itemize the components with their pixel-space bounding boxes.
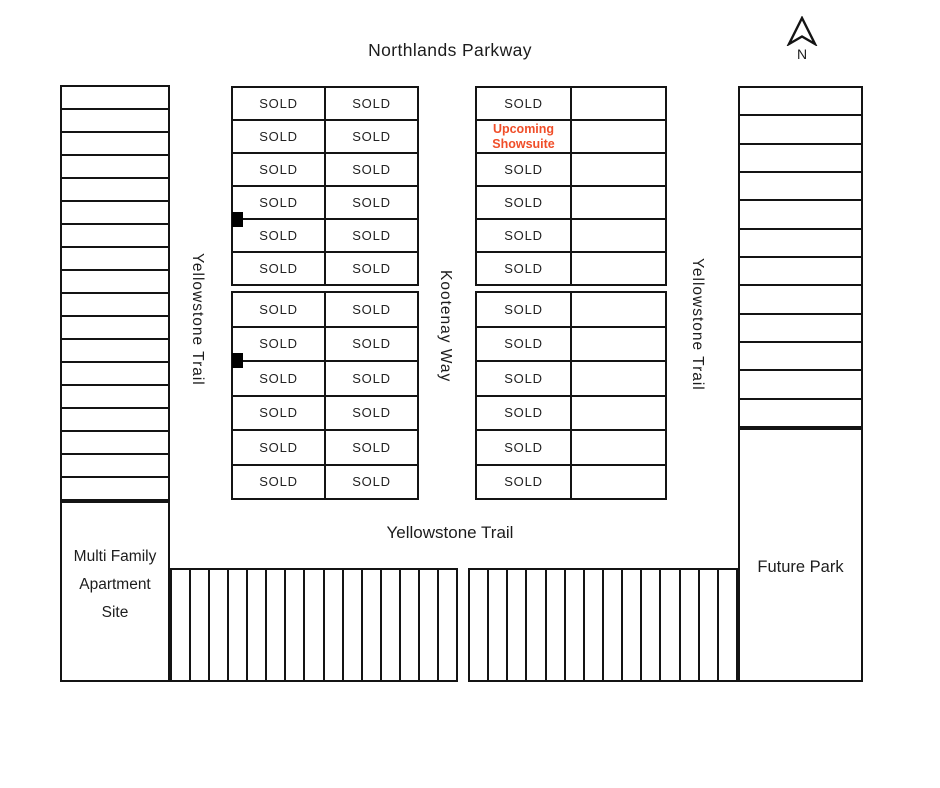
- lot-row[interactable]: [740, 369, 861, 397]
- sold-label: SOLD: [259, 228, 298, 243]
- sold-label: SOLD: [504, 195, 543, 210]
- sold-label: SOLD: [504, 336, 543, 351]
- lot-row[interactable]: [62, 131, 168, 154]
- street-label-kootenay-way: Kootenay Way: [436, 270, 454, 382]
- west-lot-column: [60, 85, 170, 501]
- lot-cell[interactable]: [698, 570, 717, 680]
- lot-cell[interactable]: [602, 570, 621, 680]
- lot-block-row: SOLDSOLD: [233, 395, 417, 430]
- lot-cell-sold[interactable]: SOLD: [233, 154, 324, 185]
- lot-row[interactable]: [740, 284, 861, 312]
- lot-row[interactable]: [62, 223, 168, 246]
- lot-block-row: SOLD: [477, 326, 665, 361]
- multi-family-label-line1: Multi Family: [62, 543, 168, 571]
- south-east-lot-row: [468, 568, 738, 682]
- lot-block-row: SOLD: [477, 152, 665, 185]
- lot-marker-icon: [232, 212, 243, 227]
- lot-block-row: SOLDSOLD: [233, 251, 417, 284]
- lot-row[interactable]: [740, 228, 861, 256]
- sold-label: SOLD: [259, 302, 298, 317]
- lot-cell-sold[interactable]: SOLD: [233, 121, 324, 152]
- lot-cell-sold[interactable]: SOLD: [477, 253, 570, 284]
- site-plan: Northlands Parkway N Yellowstone Trail S…: [0, 0, 940, 788]
- lot-row[interactable]: [740, 341, 861, 369]
- lot-row[interactable]: [740, 114, 861, 142]
- street-label-northlands-parkway: Northlands Parkway: [0, 40, 900, 61]
- lot-row[interactable]: [62, 154, 168, 177]
- lot-cell-sold[interactable]: SOLD: [233, 362, 324, 395]
- sold-label: SOLD: [259, 474, 298, 489]
- lot-cell-sold[interactable]: SOLD: [477, 431, 570, 464]
- lot-cell-sold[interactable]: SOLD: [477, 293, 570, 326]
- lot-cell[interactable]: [640, 570, 659, 680]
- lot-cell-empty[interactable]: [570, 154, 665, 185]
- center-east-block-group-2: SOLDSOLDSOLDSOLDSOLDSOLD: [475, 291, 667, 500]
- lot-marker-icon: [232, 353, 243, 368]
- lot-cell[interactable]: [506, 570, 525, 680]
- lot-cell-empty[interactable]: [570, 328, 665, 361]
- sold-label: SOLD: [352, 162, 391, 177]
- lot-cell-sold[interactable]: SOLD: [477, 397, 570, 430]
- sold-label: SOLD: [259, 405, 298, 420]
- sold-label: SOLD: [352, 474, 391, 489]
- sold-label: SOLD: [259, 96, 298, 111]
- lot-cell-showsuite[interactable]: Upcoming Showsuite: [477, 121, 570, 152]
- lot-cell[interactable]: [246, 570, 265, 680]
- lot-cell-sold[interactable]: SOLD: [324, 187, 417, 218]
- lot-cell-sold[interactable]: SOLD: [324, 253, 417, 284]
- sold-label: SOLD: [352, 195, 391, 210]
- lot-row[interactable]: [740, 143, 861, 171]
- lot-cell[interactable]: [189, 570, 208, 680]
- future-park-area: Future Park: [738, 428, 863, 682]
- sold-label: SOLD: [259, 371, 298, 386]
- lot-cell-sold[interactable]: SOLD: [324, 293, 417, 326]
- lot-block-row: SOLDSOLD: [233, 119, 417, 152]
- center-west-block-group-2: SOLDSOLDSOLDSOLDSOLDSOLDSOLDSOLDSOLDSOLD…: [231, 291, 419, 500]
- lot-row[interactable]: [62, 246, 168, 269]
- lot-cell-sold[interactable]: SOLD: [324, 397, 417, 430]
- sold-label: SOLD: [259, 129, 298, 144]
- lot-cell[interactable]: [399, 570, 418, 680]
- lot-cell-sold[interactable]: SOLD: [233, 431, 324, 464]
- sold-label: SOLD: [352, 261, 391, 276]
- lot-row[interactable]: [740, 398, 861, 426]
- lot-cell-sold[interactable]: SOLD: [233, 328, 324, 361]
- multi-family-label-line3: Site: [62, 599, 168, 627]
- lot-cell-sold[interactable]: SOLD: [477, 328, 570, 361]
- lot-cell[interactable]: [284, 570, 303, 680]
- lot-cell-sold[interactable]: SOLD: [477, 220, 570, 251]
- lot-cell[interactable]: [265, 570, 284, 680]
- lot-block-row: SOLD: [477, 429, 665, 464]
- lot-cell-sold[interactable]: SOLD: [477, 466, 570, 499]
- lot-block-row: SOLD: [477, 395, 665, 430]
- lot-cell-sold[interactable]: SOLD: [324, 121, 417, 152]
- lot-cell[interactable]: [621, 570, 640, 680]
- lot-block-row: SOLDSOLD: [233, 326, 417, 361]
- lot-cell-empty[interactable]: [570, 397, 665, 430]
- sold-label: SOLD: [352, 129, 391, 144]
- lot-row[interactable]: [62, 200, 168, 223]
- south-west-lot-row: [170, 568, 458, 682]
- sold-label: SOLD: [504, 162, 543, 177]
- lot-cell-sold[interactable]: SOLD: [477, 154, 570, 185]
- lot-cell-empty[interactable]: [570, 88, 665, 119]
- lot-row[interactable]: [62, 269, 168, 292]
- lot-block-row: SOLD: [477, 464, 665, 499]
- lot-cell-sold[interactable]: SOLD: [233, 88, 324, 119]
- lot-cell-sold[interactable]: SOLD: [233, 253, 324, 284]
- lot-block-row: SOLDSOLD: [233, 360, 417, 395]
- lot-cell-sold[interactable]: SOLD: [324, 88, 417, 119]
- lot-cell-empty[interactable]: [570, 187, 665, 218]
- lot-row[interactable]: [62, 361, 168, 384]
- lot-block-row: SOLDSOLD: [233, 293, 417, 326]
- lot-row[interactable]: [740, 199, 861, 227]
- lot-cell[interactable]: [227, 570, 246, 680]
- sold-label: SOLD: [504, 474, 543, 489]
- lot-cell-sold[interactable]: SOLD: [324, 220, 417, 251]
- sold-label: SOLD: [504, 228, 543, 243]
- lot-cell-sold[interactable]: SOLD: [233, 293, 324, 326]
- sold-label: SOLD: [259, 162, 298, 177]
- lot-cell[interactable]: [583, 570, 602, 680]
- lot-block-row: SOLDSOLD: [233, 429, 417, 464]
- lot-cell-sold[interactable]: SOLD: [233, 220, 324, 251]
- lot-row[interactable]: [740, 313, 861, 341]
- lot-row[interactable]: [62, 108, 168, 131]
- lot-block-row: SOLDSOLD: [233, 218, 417, 251]
- lot-cell[interactable]: [208, 570, 227, 680]
- sold-label: SOLD: [504, 440, 543, 455]
- lot-row[interactable]: [62, 87, 168, 108]
- compass: N: [780, 16, 824, 62]
- lot-row[interactable]: [740, 88, 861, 114]
- lot-cell[interactable]: [679, 570, 698, 680]
- lot-block-row: SOLD: [477, 185, 665, 218]
- sold-label: SOLD: [352, 405, 391, 420]
- sold-label: SOLD: [259, 440, 298, 455]
- lot-cell[interactable]: [545, 570, 564, 680]
- lot-cell[interactable]: [659, 570, 678, 680]
- east-lot-column: [738, 86, 863, 428]
- lot-cell-sold[interactable]: SOLD: [477, 187, 570, 218]
- lot-cell-sold[interactable]: SOLD: [324, 466, 417, 499]
- lot-cell-sold[interactable]: SOLD: [324, 154, 417, 185]
- lot-block-row: SOLDSOLD: [233, 152, 417, 185]
- lot-block-row: SOLDSOLD: [233, 88, 417, 119]
- showsuite-label: Upcoming Showsuite: [483, 122, 565, 152]
- lot-block-row: SOLD: [477, 218, 665, 251]
- sold-label: SOLD: [352, 96, 391, 111]
- lot-block-row: SOLD: [477, 88, 665, 119]
- lot-cell[interactable]: [361, 570, 380, 680]
- lot-cell-empty[interactable]: [570, 220, 665, 251]
- lot-row[interactable]: [62, 315, 168, 338]
- street-label-yellowstone-trail-south: Yellowstone Trail: [0, 523, 900, 543]
- sold-label: SOLD: [259, 261, 298, 276]
- lot-row[interactable]: [62, 407, 168, 430]
- lot-block-row: SOLD: [477, 360, 665, 395]
- lot-cell-empty[interactable]: [570, 121, 665, 152]
- lot-row[interactable]: [62, 338, 168, 361]
- lot-cell-empty[interactable]: [570, 466, 665, 499]
- sold-label: SOLD: [352, 302, 391, 317]
- lot-cell[interactable]: [342, 570, 361, 680]
- lot-block-row: Upcoming Showsuite: [477, 119, 665, 152]
- lot-block-row: SOLD: [477, 293, 665, 326]
- lot-cell-sold[interactable]: SOLD: [477, 362, 570, 395]
- sold-label: SOLD: [504, 405, 543, 420]
- sold-label: SOLD: [259, 195, 298, 210]
- lot-cell-empty[interactable]: [570, 362, 665, 395]
- lot-row[interactable]: [740, 171, 861, 199]
- lot-cell[interactable]: [717, 570, 736, 680]
- lot-cell-sold[interactable]: SOLD: [324, 431, 417, 464]
- sold-label: SOLD: [352, 228, 391, 243]
- lot-cell-sold[interactable]: SOLD: [233, 397, 324, 430]
- multi-family-label-line2: Apartment: [62, 571, 168, 599]
- lot-block-row: SOLD: [477, 251, 665, 284]
- lot-cell[interactable]: [172, 570, 189, 680]
- lot-block-row: SOLDSOLD: [233, 464, 417, 499]
- lot-cell-sold[interactable]: SOLD: [477, 88, 570, 119]
- lot-row[interactable]: [62, 292, 168, 315]
- future-park-label: Future Park: [740, 558, 861, 577]
- sold-label: SOLD: [352, 371, 391, 386]
- street-label-yellowstone-trail-west: Yellowstone Trail: [188, 253, 206, 386]
- lot-cell[interactable]: [323, 570, 342, 680]
- lot-row[interactable]: [62, 476, 168, 499]
- sold-label: SOLD: [504, 302, 543, 317]
- lot-cell-sold[interactable]: SOLD: [233, 466, 324, 499]
- center-east-block-group-1: SOLDUpcoming ShowsuiteSOLDSOLDSOLDSOLD: [475, 86, 667, 286]
- lot-cell-sold[interactable]: SOLD: [324, 328, 417, 361]
- sold-label: SOLD: [504, 371, 543, 386]
- lot-row[interactable]: [62, 384, 168, 407]
- lot-cell-empty[interactable]: [570, 253, 665, 284]
- lot-cell[interactable]: [525, 570, 544, 680]
- lot-cell[interactable]: [380, 570, 399, 680]
- lot-block-row: SOLDSOLD: [233, 185, 417, 218]
- center-west-block-group-1: SOLDSOLDSOLDSOLDSOLDSOLDSOLDSOLDSOLDSOLD…: [231, 86, 419, 286]
- sold-label: SOLD: [352, 440, 391, 455]
- lot-cell[interactable]: [418, 570, 437, 680]
- street-label-yellowstone-trail-east: Yellowstone Trail: [688, 258, 706, 391]
- lot-row[interactable]: [62, 430, 168, 453]
- lot-cell[interactable]: [487, 570, 506, 680]
- sold-label: SOLD: [504, 96, 543, 111]
- lot-cell-empty[interactable]: [570, 293, 665, 326]
- sold-label: SOLD: [352, 336, 391, 351]
- sold-label: SOLD: [504, 261, 543, 276]
- lot-row[interactable]: [740, 256, 861, 284]
- lot-cell[interactable]: [303, 570, 322, 680]
- lot-cell-sold[interactable]: SOLD: [324, 362, 417, 395]
- lot-cell[interactable]: [437, 570, 456, 680]
- lot-row[interactable]: [62, 177, 168, 200]
- sold-label: SOLD: [259, 336, 298, 351]
- lot-cell-empty[interactable]: [570, 431, 665, 464]
- lot-cell-sold[interactable]: SOLD: [233, 187, 324, 218]
- lot-cell[interactable]: [564, 570, 583, 680]
- lot-cell[interactable]: [470, 570, 487, 680]
- lot-row[interactable]: [62, 453, 168, 476]
- compass-north-label: N: [780, 46, 824, 62]
- north-arrow-icon: [786, 16, 818, 46]
